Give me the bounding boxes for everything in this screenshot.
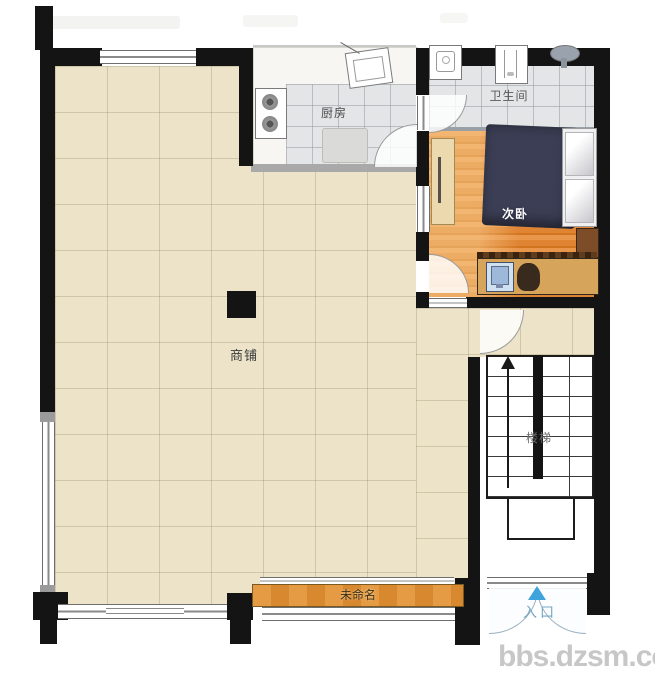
shop-floor-extension: [416, 308, 468, 605]
unnamed-label: 未命名: [340, 588, 376, 602]
wall: [466, 297, 597, 308]
wall: [587, 573, 610, 615]
window: [100, 50, 196, 64]
unnamed-strip: 未命名: [252, 584, 464, 607]
bed-pillows: [562, 128, 597, 227]
floor-plan: 商铺 厨房 卫生间 次卧 楼梯 未命名 入口 bbs.dzsm.com: [0, 0, 655, 679]
window: [42, 422, 55, 585]
stairs-up-arrow-icon: [501, 356, 515, 369]
wall: [416, 131, 429, 186]
wall: [416, 292, 429, 308]
wall: [230, 620, 251, 644]
stairs-line: [569, 357, 570, 497]
wall: [40, 620, 57, 644]
entrance-label: 入口: [512, 602, 568, 622]
entrance-arrow-icon: [528, 586, 546, 600]
shop-label: 商铺: [214, 345, 274, 364]
chair: [517, 263, 540, 291]
stairs-direction-line: [507, 366, 509, 488]
wall: [227, 593, 253, 620]
scan-artifact: [243, 15, 298, 27]
kitchen-sink-icon: [345, 47, 394, 89]
shower-stem: [561, 58, 567, 68]
column: [227, 291, 256, 318]
bathroom-label: 卫生间: [476, 87, 542, 104]
watermark: bbs.dzsm.com: [498, 640, 655, 674]
wall: [35, 6, 53, 50]
kitchen-island: [322, 128, 368, 163]
stove-icon: [255, 88, 287, 139]
bedroom-label: 次卧: [490, 205, 540, 222]
bay-window: [106, 608, 184, 619]
scan-artifact: [440, 13, 468, 23]
stairs-divider: [533, 355, 543, 479]
kitchen-label: 厨房: [309, 104, 359, 121]
toilet-icon: [429, 45, 462, 80]
wall-cap: [40, 412, 55, 422]
wall: [40, 48, 55, 414]
wall: [416, 232, 429, 261]
window: [262, 607, 455, 621]
washbasin-icon: [495, 45, 528, 84]
wall: [239, 48, 253, 166]
kitchen-outer-line: [253, 45, 416, 47]
scan-artifact: [35, 16, 180, 29]
window: [417, 186, 430, 232]
door-opening: [429, 298, 467, 308]
wardrobe: [431, 138, 455, 225]
wall: [468, 357, 480, 578]
stairs-label: 楼梯: [514, 429, 564, 446]
stairs-landing: [507, 499, 575, 540]
computer-icon: [486, 262, 514, 292]
